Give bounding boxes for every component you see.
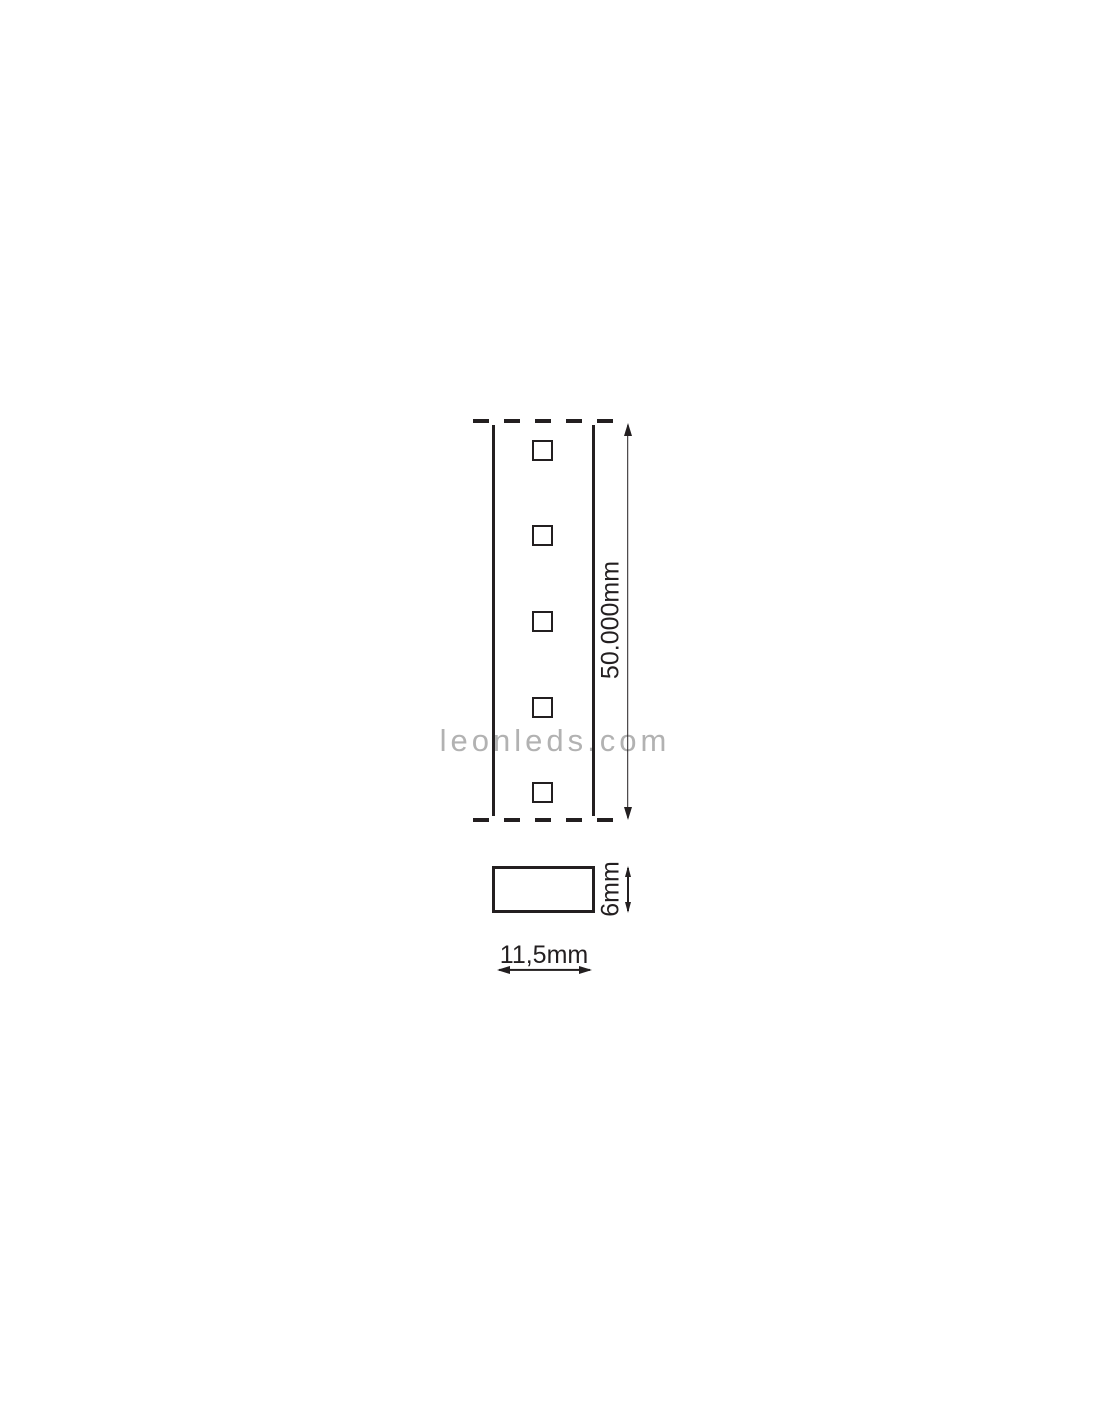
arrow-right-icon — [579, 966, 592, 974]
width-dimension-arrow — [497, 965, 592, 974]
led-square — [532, 782, 553, 803]
dimension-line — [499, 968, 590, 970]
led-square — [532, 611, 553, 632]
dimension-line — [627, 425, 629, 818]
height-dimension-label: 6mm — [597, 861, 626, 917]
strip-right-edge-line — [592, 425, 595, 816]
arrow-down-icon — [624, 807, 632, 820]
led-square — [532, 525, 553, 546]
watermark-text: leonleds.com — [440, 723, 671, 759]
strip-left-edge-line — [492, 425, 495, 816]
cross-section-rectangle — [492, 866, 595, 913]
led-square — [532, 697, 553, 718]
strip-top-dashed-edge — [473, 419, 614, 423]
length-dimension-label: 50.000mm — [597, 561, 626, 679]
technical-diagram: leonleds.com 50.000mm 6mm 11,5mm — [0, 0, 1100, 1422]
strip-bottom-dashed-edge — [473, 818, 614, 822]
led-square — [532, 440, 553, 461]
